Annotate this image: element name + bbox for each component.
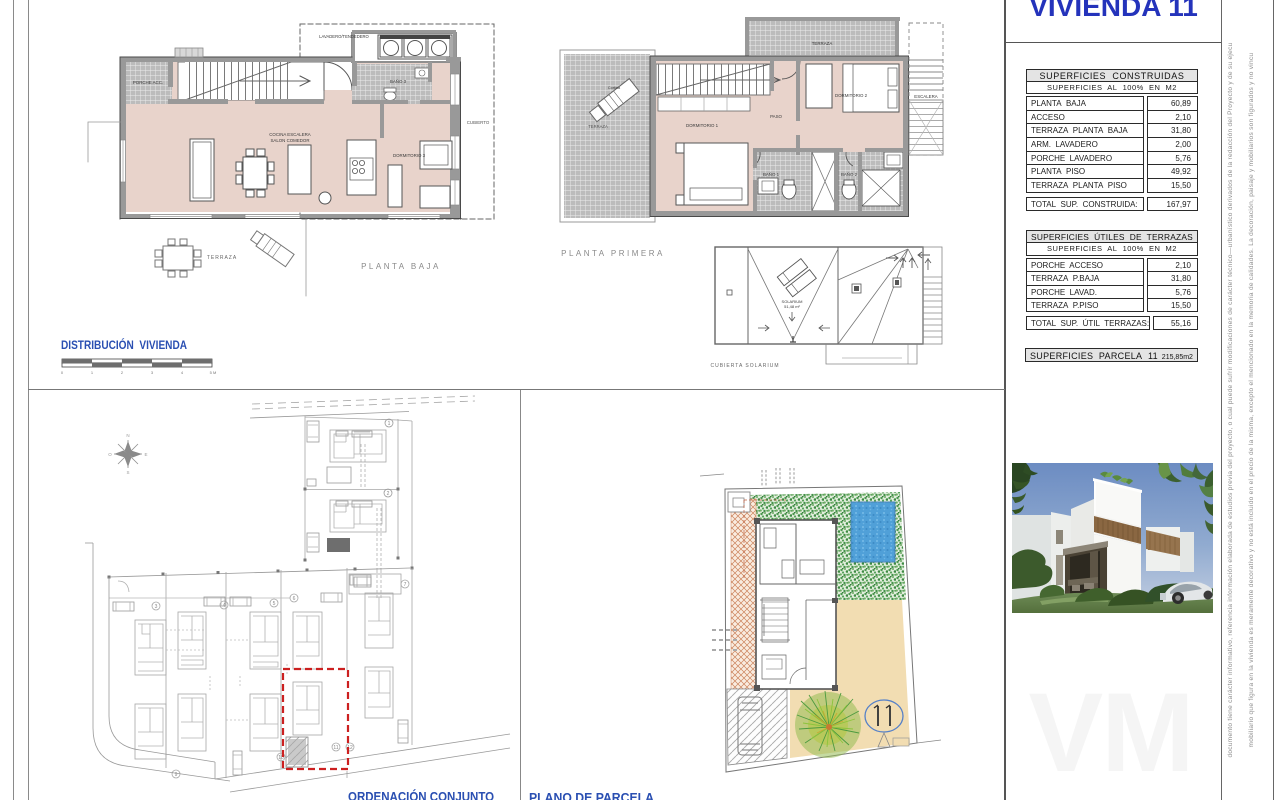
svg-text:TERRAZA: TERRAZA (588, 124, 608, 129)
svg-text:1: 1 (388, 421, 391, 427)
svg-text:TERRAZA: TERRAZA (207, 255, 237, 261)
svg-text:PLANTA BAJA: PLANTA BAJA (361, 262, 441, 271)
svg-text:ESCALERA: ESCALERA (914, 94, 937, 99)
svg-text:0: 0 (61, 370, 64, 375)
svg-text:E: E (144, 452, 147, 457)
svg-text:DORMITORIO 2: DORMITORIO 2 (835, 93, 868, 98)
svg-text:DORMITORIO 1: DORMITORIO 1 (686, 123, 719, 128)
svg-text:2: 2 (387, 491, 390, 497)
svg-text:7: 7 (404, 582, 407, 588)
svg-text:4: 4 (181, 370, 184, 375)
svg-text:COCINA ESCALERA: COCINA ESCALERA (269, 132, 311, 137)
svg-text:5 M: 5 M (210, 370, 217, 375)
svg-text:6: 6 (293, 596, 296, 602)
svg-text:BAÑO 3: BAÑO 3 (390, 79, 407, 84)
svg-text:51,48 m²: 51,48 m² (784, 304, 800, 309)
svg-text:BAÑO 2: BAÑO 2 (841, 172, 858, 177)
svg-text:BAÑO 1: BAÑO 1 (763, 172, 780, 177)
svg-text:Cortina: Cortina (608, 86, 621, 90)
svg-text:N: N (126, 433, 129, 438)
svg-text:DORMITORIO 3: DORMITORIO 3 (393, 153, 426, 158)
svg-text:PASO: PASO (770, 114, 782, 119)
svg-text:CUBIERTA SOLARIUM: CUBIERTA SOLARIUM (710, 363, 779, 369)
svg-text:5: 5 (273, 601, 276, 607)
svg-text:PORCHE ACC.: PORCHE ACC. (133, 80, 163, 85)
svg-text:3: 3 (151, 370, 154, 375)
svg-text:PLANTA PRIMERA: PLANTA PRIMERA (561, 249, 665, 258)
svg-text:3: 3 (155, 604, 158, 610)
svg-text:1: 1 (91, 370, 94, 375)
svg-text:O: O (108, 452, 112, 457)
svg-text:LAVADERO/TENDEDERO: LAVADERO/TENDEDERO (319, 34, 369, 39)
svg-text:CUBIERTO: CUBIERTO (467, 120, 490, 125)
svg-text:SALON COMEDOR: SALON COMEDOR (270, 138, 309, 143)
svg-text:11: 11 (333, 745, 338, 751)
svg-text:2: 2 (121, 370, 124, 375)
svg-text:S: S (126, 470, 129, 475)
svg-text:TERRAZA: TERRAZA (812, 41, 833, 46)
